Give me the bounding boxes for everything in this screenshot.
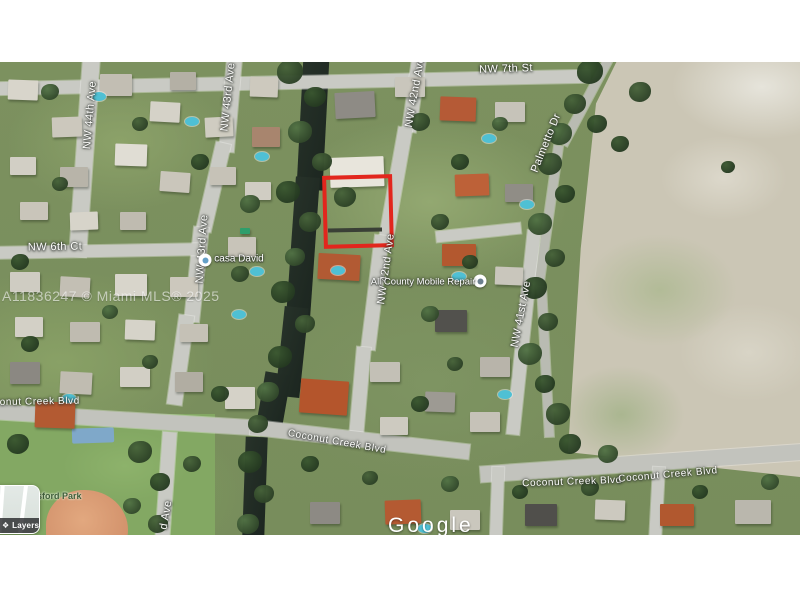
street-label-nw-6th-ct: NW 6th Ct bbox=[28, 241, 83, 254]
poi-label-all-county-mobile-repair: All County Mobile Repair bbox=[371, 277, 476, 288]
layers-icon: ❖ bbox=[2, 522, 9, 530]
satellite-map-canvas[interactable]: NW 44th Ave NW 43rd Ave NW 42nd Ave NW 7… bbox=[0, 62, 800, 535]
park-label: sford Park bbox=[37, 491, 82, 501]
street-label-coconut-creek-blvd-west: Coconut Creek Blvd bbox=[0, 396, 80, 409]
layers-label: Layers bbox=[12, 521, 39, 530]
poi-pin-casa-david[interactable] bbox=[199, 254, 212, 267]
layers-button[interactable]: ❖ Layers bbox=[0, 485, 40, 534]
listing-map-screenshot: NW 44th Ave NW 43rd Ave NW 42nd Ave NW 7… bbox=[0, 0, 800, 600]
street-label-nw-7th-st: NW 7th St bbox=[479, 62, 533, 76]
mls-watermark: A11836247 © Miami MLS® 2025 bbox=[2, 288, 220, 304]
subject-property-outline bbox=[322, 174, 394, 249]
google-logo[interactable]: Google bbox=[388, 514, 474, 535]
poi-label-casa-david: casa David bbox=[214, 254, 263, 265]
layers-bar: ❖ Layers bbox=[0, 518, 39, 533]
